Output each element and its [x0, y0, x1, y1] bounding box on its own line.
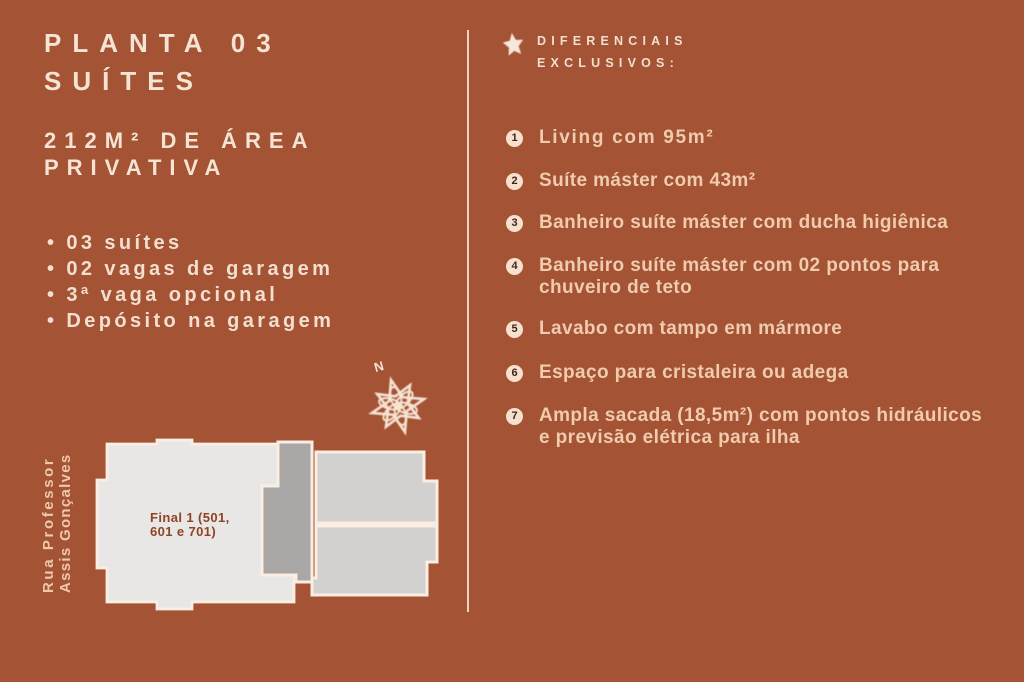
svg-text:Rua Professor: Rua Professor	[40, 457, 57, 593]
svg-text:Assis Gonçalves: Assis Gonçalves	[57, 453, 74, 593]
svg-text:N: N	[372, 358, 385, 375]
svg-text:601 e 701): 601 e 701)	[150, 524, 216, 539]
svg-text:Final 1 (501,: Final 1 (501,	[150, 510, 230, 525]
